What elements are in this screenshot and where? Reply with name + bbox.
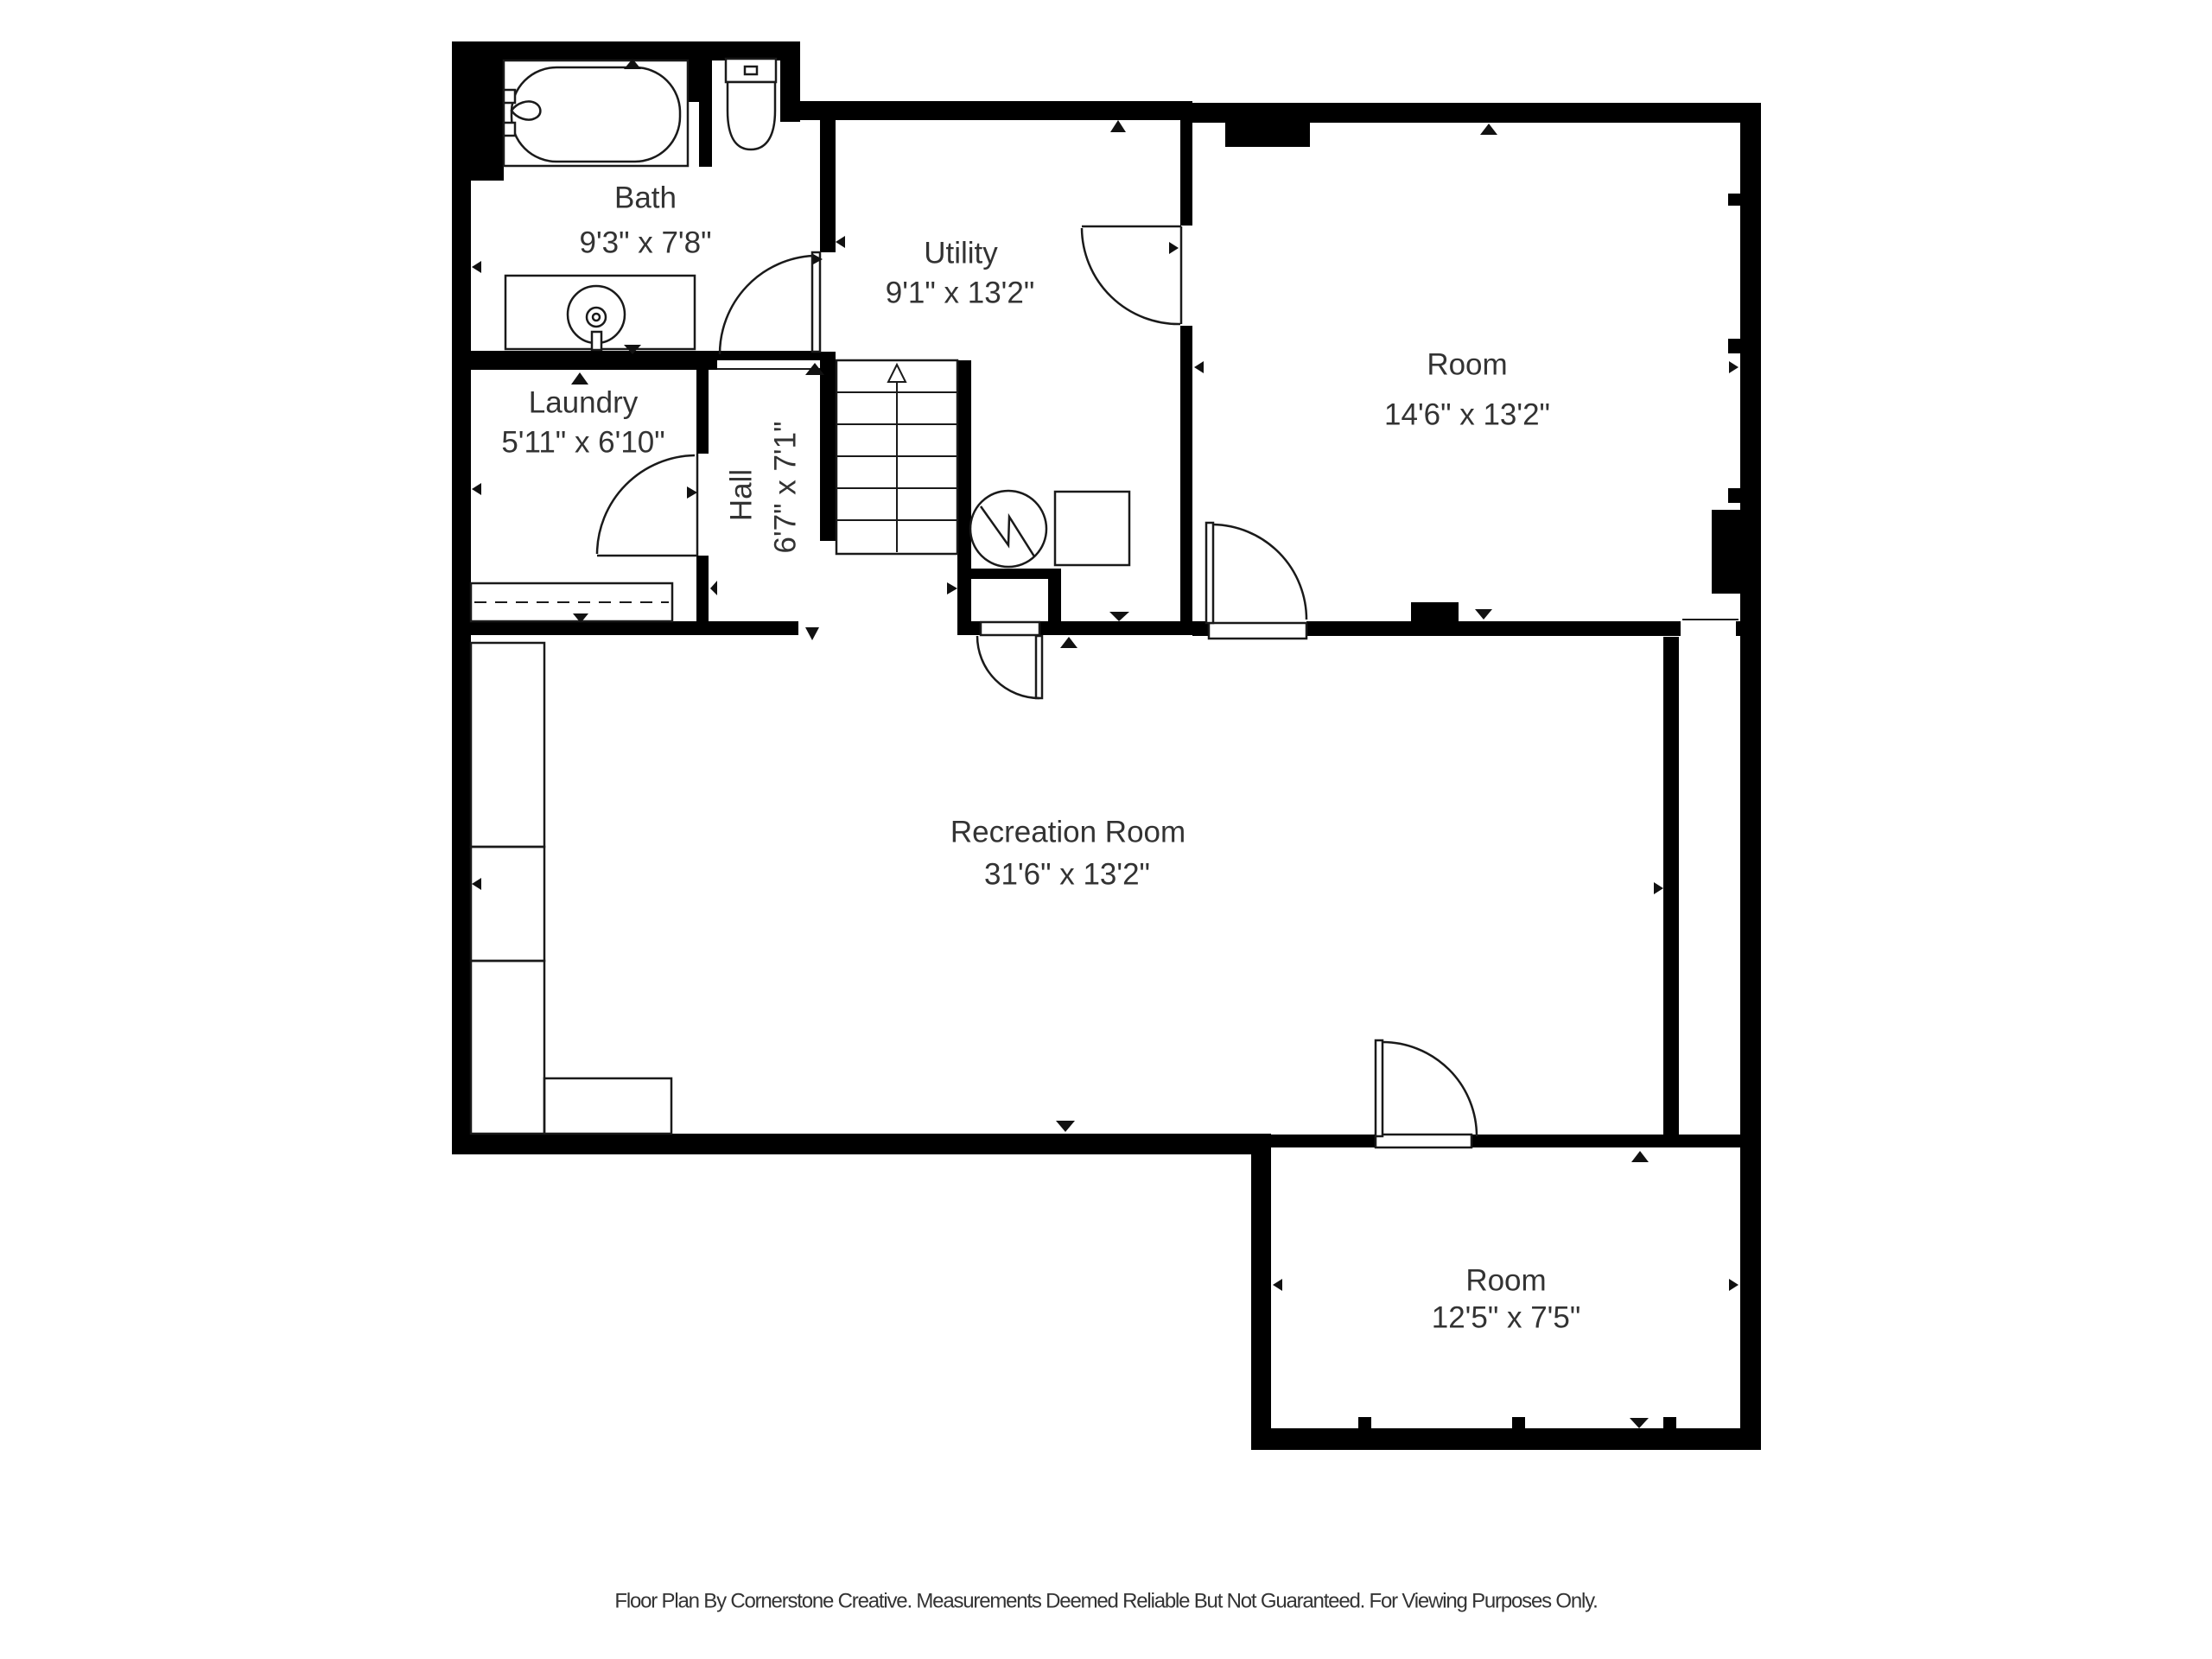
svg-text:Room: Room (1465, 1264, 1546, 1298)
svg-text:Recreation Room: Recreation Room (950, 816, 1185, 849)
svg-text:14'6" x 13'2": 14'6" x 13'2" (1384, 398, 1550, 432)
svg-text:6'7" x 7'1": 6'7" x 7'1" (769, 421, 803, 553)
svg-text:5'11" x 6'10": 5'11" x 6'10" (501, 426, 664, 460)
svg-text:Floor Plan By Cornerstone Crea: Floor Plan By Cornerstone Creative. Meas… (614, 1590, 1597, 1613)
svg-text:9'3" x 7'8": 9'3" x 7'8" (579, 226, 711, 260)
svg-text:31'6" x 13'2": 31'6" x 13'2" (984, 858, 1150, 892)
svg-text:Laundry: Laundry (529, 386, 639, 420)
svg-text:Utility: Utility (924, 237, 998, 270)
svg-text:9'1" x 13'2": 9'1" x 13'2" (886, 276, 1035, 310)
svg-text:12'5" x 7'5": 12'5" x 7'5" (1432, 1301, 1581, 1335)
svg-text:Hall: Hall (725, 469, 759, 521)
svg-text:Room: Room (1427, 348, 1507, 382)
svg-text:Bath: Bath (614, 181, 677, 215)
